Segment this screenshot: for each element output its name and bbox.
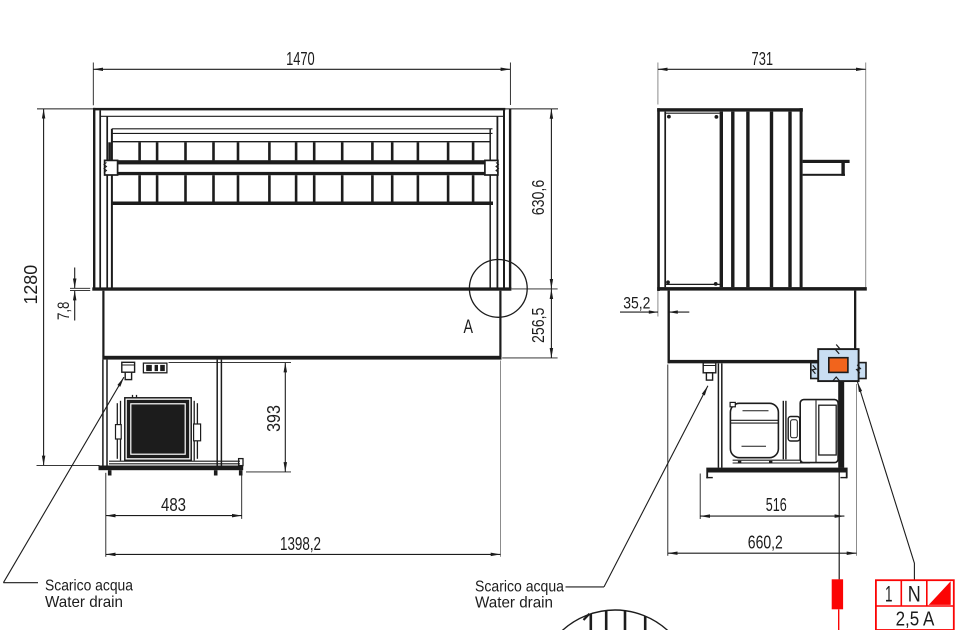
svg-text:660,2: 660,2 [748,533,783,553]
svg-text:2,5 A: 2,5 A [896,608,935,630]
svg-text:A: A [463,317,473,338]
svg-text:7,8: 7,8 [54,302,73,320]
svg-text:1: 1 [885,581,893,606]
svg-text:516: 516 [766,495,787,515]
svg-text:483: 483 [161,495,186,515]
svg-text:Scarico acqua: Scarico acqua [475,578,564,595]
svg-text:1398,2: 1398,2 [280,534,321,554]
svg-text:Scarico acqua: Scarico acqua [45,577,133,594]
svg-text:393: 393 [264,405,284,432]
svg-text:Water drain: Water drain [45,594,123,611]
svg-text:Water drain: Water drain [475,595,553,612]
svg-text:N: N [908,581,921,606]
svg-text:1470: 1470 [286,49,315,69]
svg-text:256,5: 256,5 [528,308,548,343]
svg-text:35,2: 35,2 [623,293,650,312]
svg-text:630,6: 630,6 [528,180,548,216]
svg-text:1280: 1280 [21,265,41,305]
svg-text:731: 731 [752,49,774,69]
